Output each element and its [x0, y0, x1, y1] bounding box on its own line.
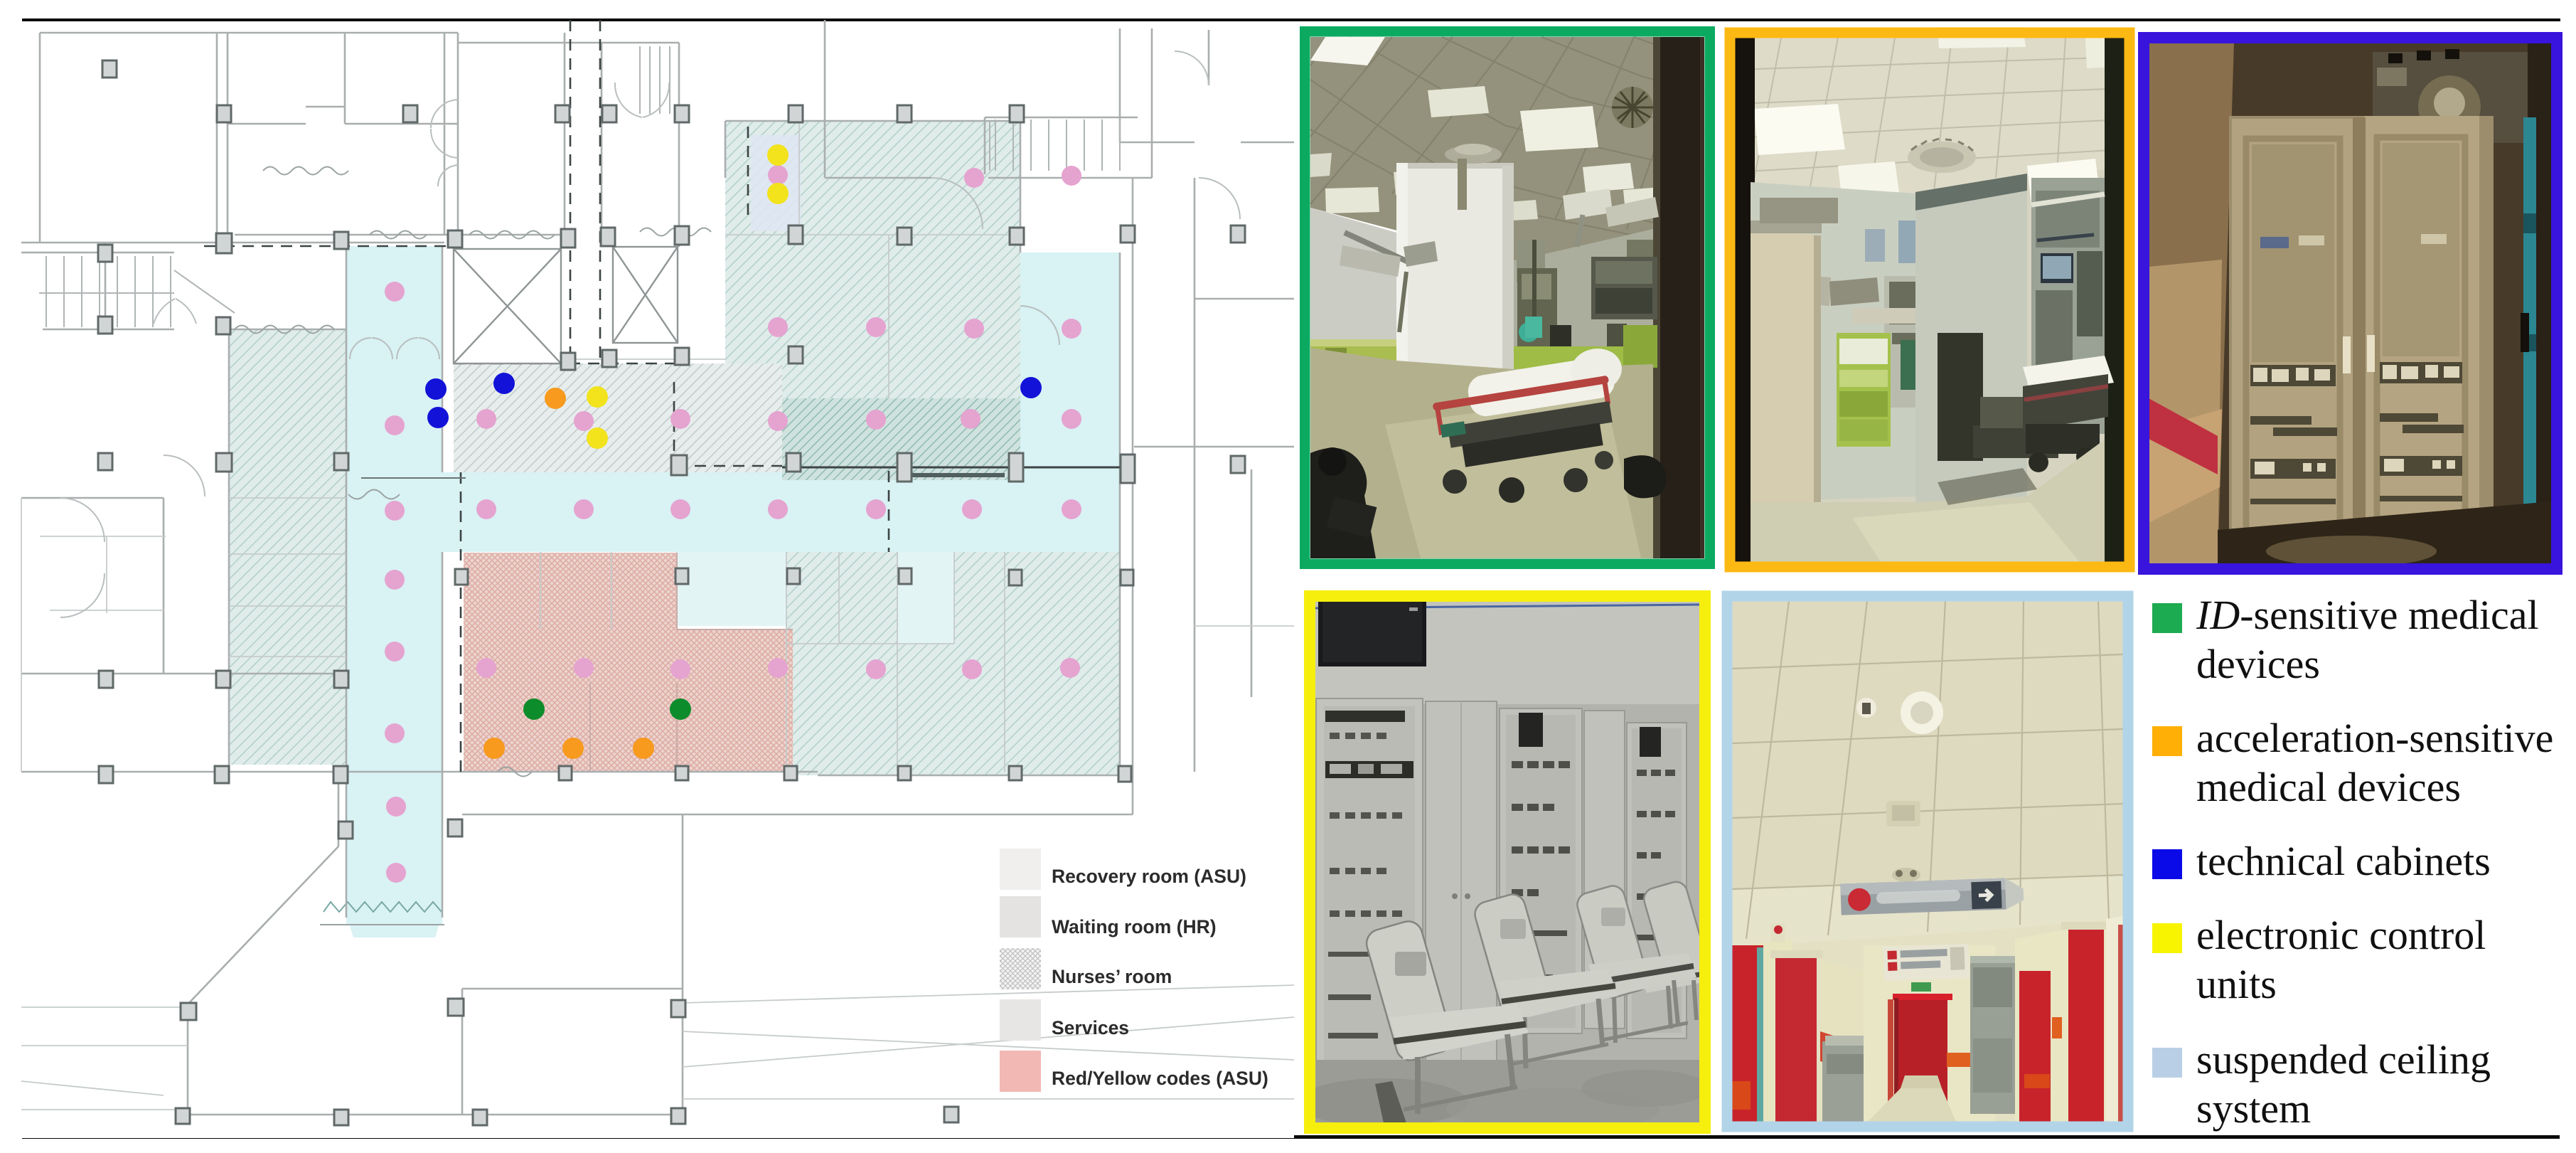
- svg-text:Red/Yellow codes (ASU): Red/Yellow codes (ASU): [1052, 1068, 1268, 1089]
- svg-text:Services: Services: [1052, 1017, 1129, 1038]
- svg-text:Nurses’ room: Nurses’ room: [1052, 966, 1172, 987]
- svg-text:Waiting room (HR): Waiting room (HR): [1052, 916, 1217, 937]
- svg-text:Recovery room (ASU): Recovery room (ASU): [1052, 866, 1246, 887]
